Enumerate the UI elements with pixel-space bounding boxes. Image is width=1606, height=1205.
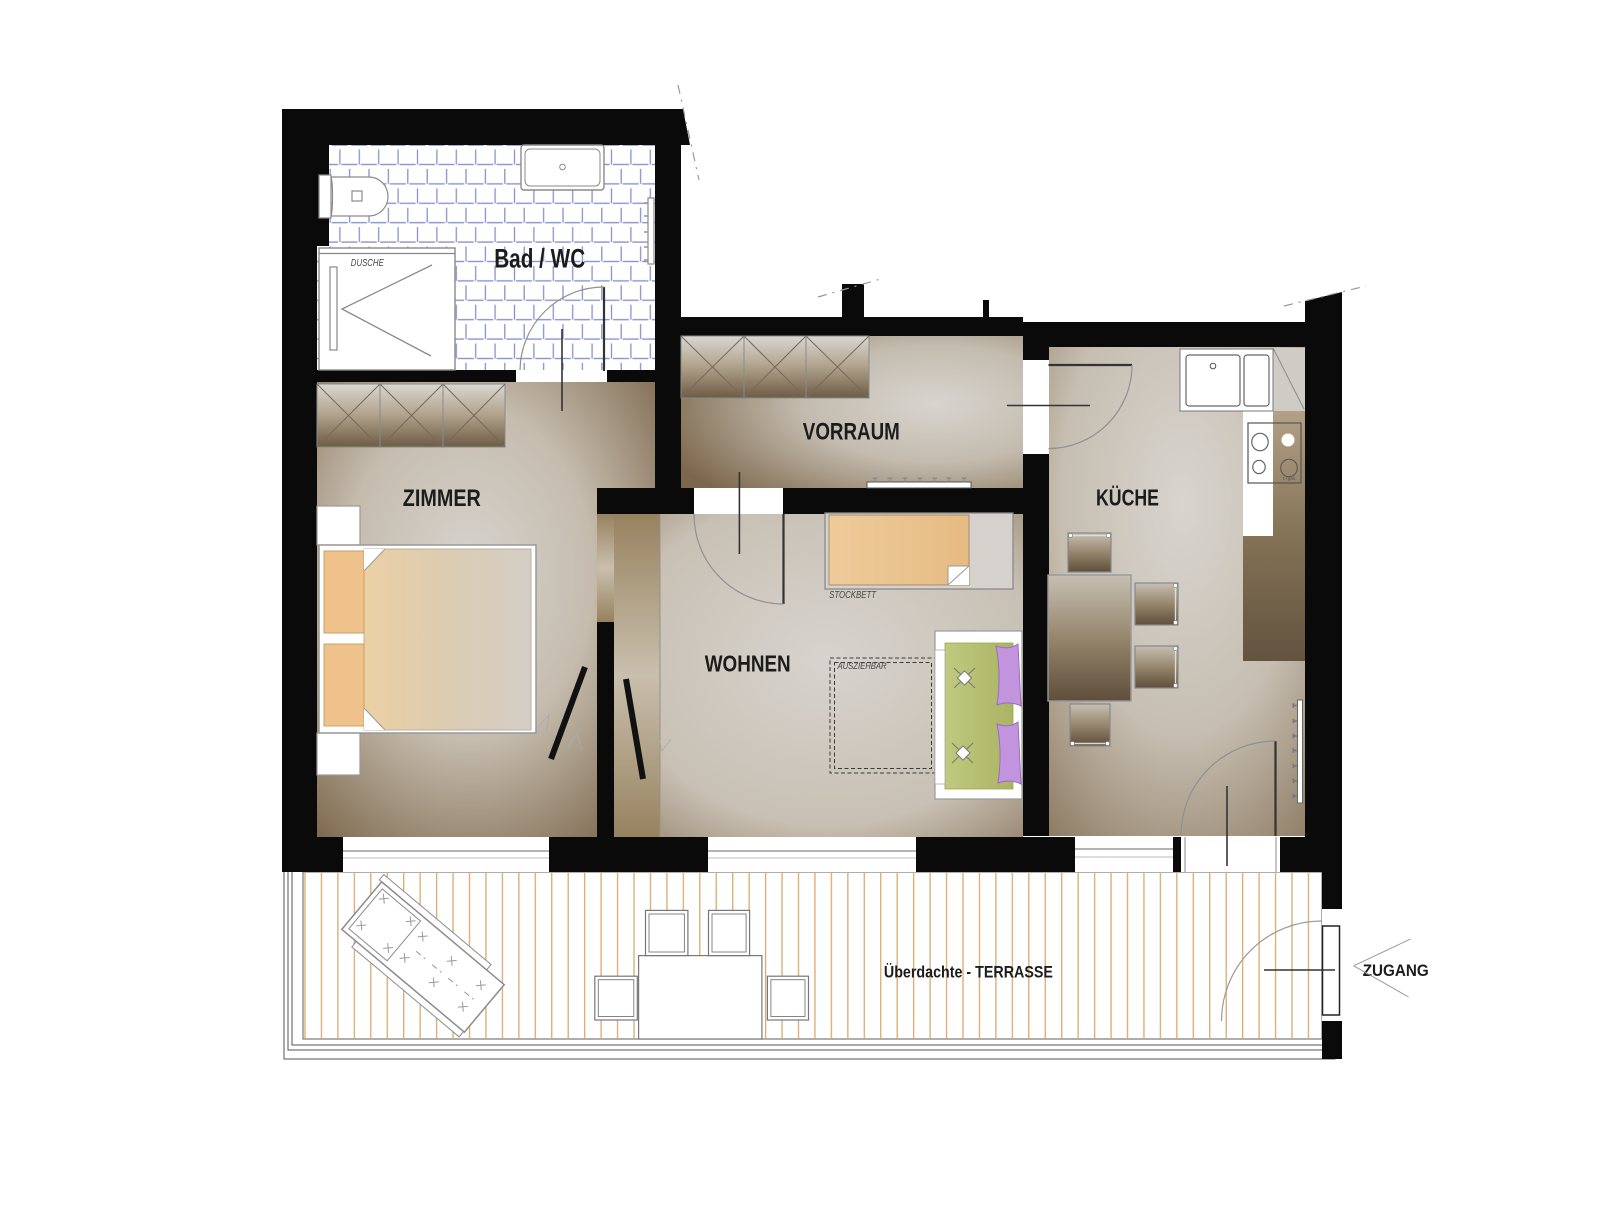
svg-text:Überdachte - TERRASSE: Überdachte - TERRASSE <box>884 963 1053 982</box>
svg-text:WOHNEN: WOHNEN <box>705 650 791 676</box>
svg-text:KÜCHE: KÜCHE <box>1096 485 1159 511</box>
svg-text:VORRAUM: VORRAUM <box>803 418 900 445</box>
svg-text:ZIMMER: ZIMMER <box>403 485 481 512</box>
svg-text:L+gas: L+gas <box>1283 476 1296 481</box>
svg-text:AUSZIEHBAR: AUSZIEHBAR <box>837 661 887 672</box>
svg-text:STOCKBETT: STOCKBETT <box>829 590 877 601</box>
svg-text:ZUGANG: ZUGANG <box>1363 962 1429 980</box>
svg-text:Bad / WC: Bad / WC <box>494 244 585 274</box>
svg-text:DUSCHE: DUSCHE <box>351 258 384 269</box>
